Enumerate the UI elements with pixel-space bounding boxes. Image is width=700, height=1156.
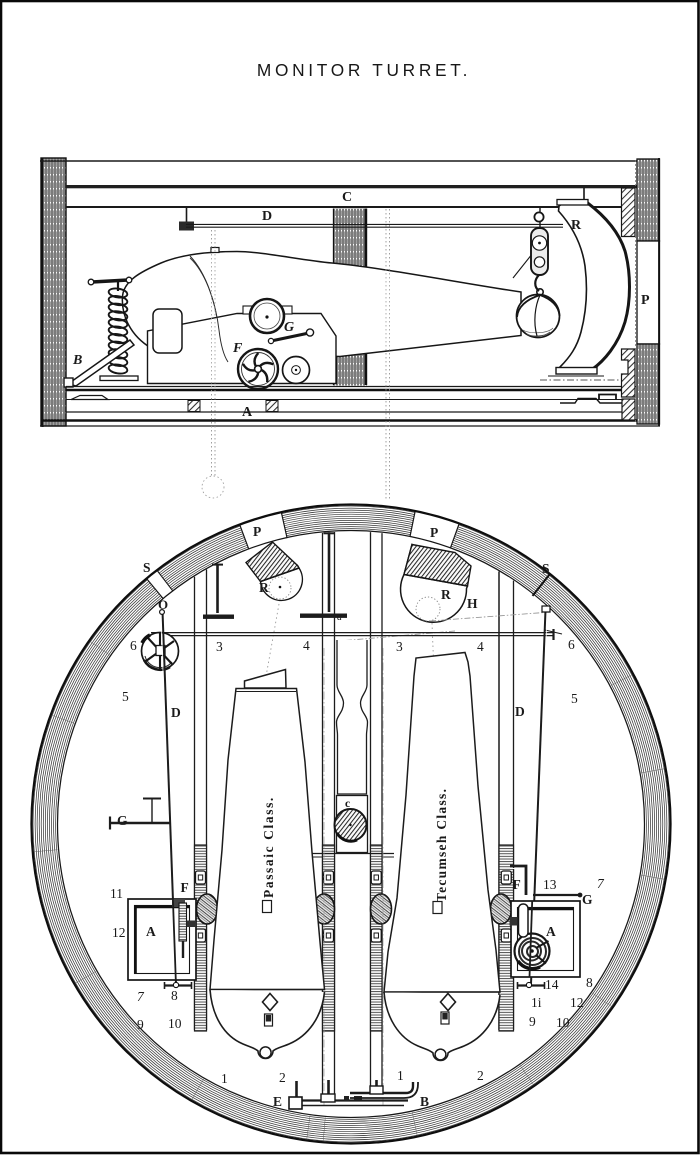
svg-text:Tecumseh Class.: Tecumseh Class. [434, 788, 449, 902]
svg-text:C: C [342, 190, 352, 205]
svg-text:9: 9 [529, 1014, 536, 1029]
svg-text:B: B [420, 1094, 429, 1109]
svg-text:R: R [259, 580, 269, 595]
svg-text:F: F [513, 877, 521, 892]
svg-text:14: 14 [545, 977, 559, 992]
svg-text:8: 8 [586, 975, 593, 990]
svg-text:11: 11 [110, 886, 123, 901]
svg-text:3: 3 [396, 639, 403, 654]
svg-text:F: F [181, 880, 189, 895]
svg-text:4: 4 [477, 639, 484, 654]
svg-text:G: G [582, 892, 593, 907]
svg-text:3: 3 [216, 639, 223, 654]
svg-text:S: S [542, 561, 550, 576]
svg-text:6: 6 [130, 638, 137, 653]
svg-text:2: 2 [477, 1068, 484, 1083]
svg-text:D: D [171, 705, 181, 720]
svg-text:1: 1 [221, 1071, 228, 1086]
svg-text:8: 8 [171, 988, 178, 1003]
svg-text:4: 4 [303, 638, 310, 653]
svg-text:D: D [515, 704, 525, 719]
svg-text:B: B [72, 353, 82, 368]
svg-text:2: 2 [279, 1070, 286, 1085]
svg-text:R: R [571, 218, 582, 233]
svg-text:G: G [117, 813, 128, 828]
svg-text:12: 12 [112, 925, 126, 940]
svg-text:Passaic Class.: Passaic Class. [261, 796, 276, 898]
svg-text:5: 5 [122, 689, 129, 704]
svg-text:P: P [641, 293, 650, 308]
svg-text:P: P [430, 525, 438, 540]
svg-text:G: G [284, 320, 294, 335]
svg-text:6: 6 [568, 637, 575, 652]
svg-text:10: 10 [168, 1016, 182, 1031]
svg-text:D: D [262, 209, 272, 224]
svg-text:5: 5 [571, 691, 578, 706]
svg-text:a: a [337, 612, 342, 623]
svg-text:9: 9 [137, 1017, 144, 1032]
svg-text:F: F [232, 341, 243, 356]
svg-text:13: 13 [543, 877, 557, 892]
svg-text:MONITOR TURRET.: MONITOR TURRET. [257, 60, 471, 80]
svg-text:E: E [273, 1094, 282, 1109]
svg-text:O: O [158, 597, 168, 612]
svg-text:1: 1 [397, 1068, 404, 1083]
svg-text:A: A [146, 924, 156, 939]
svg-text:H: H [467, 596, 478, 611]
svg-text:R: R [441, 587, 451, 602]
svg-text:A: A [242, 405, 253, 420]
svg-text:P: P [253, 524, 261, 539]
svg-text:10: 10 [556, 1015, 570, 1030]
svg-text:12: 12 [570, 995, 584, 1010]
svg-text:A: A [546, 924, 556, 939]
svg-text:S: S [143, 560, 151, 575]
svg-text:1i: 1i [531, 995, 542, 1010]
